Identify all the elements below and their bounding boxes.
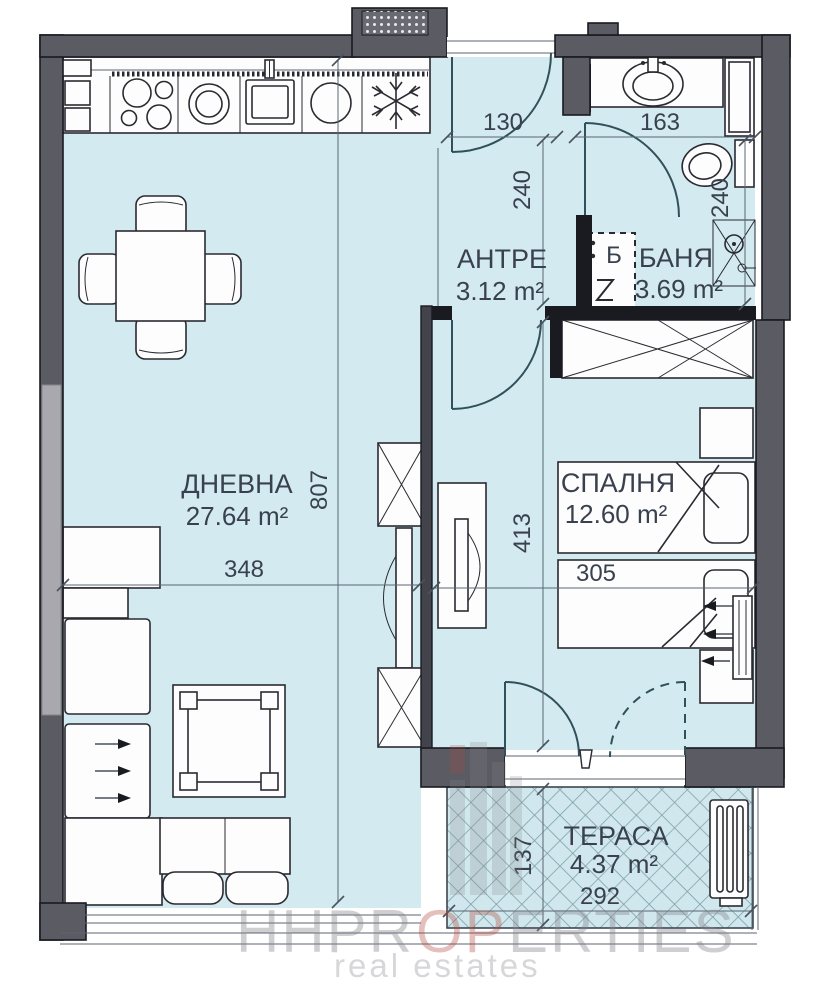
- wall-top-bathroom: [555, 35, 790, 57]
- hall-area: 3.12 m²: [456, 276, 544, 306]
- dim-living-width: 348: [224, 556, 264, 583]
- nightstand-top: [700, 408, 753, 458]
- wall-partition: [421, 306, 432, 750]
- hall-name: АНТРЕ: [457, 244, 547, 274]
- dining-table: [116, 231, 205, 321]
- boiler-washer-box: Б: [587, 233, 635, 309]
- watermark-tagline: real estates: [334, 947, 541, 984]
- tv-stand-bedroom: [438, 483, 486, 628]
- radiator-bedroom-icon: [733, 596, 752, 679]
- wall-stub-closet: [550, 320, 562, 378]
- wall-top-step: [588, 23, 618, 35]
- terrace-name: ТЕРАСА: [563, 821, 668, 851]
- wall-top-kitchen: [40, 35, 355, 57]
- bedroom-name: СПАЛНЯ: [561, 468, 675, 498]
- watermark-part3: ERTIES: [508, 898, 736, 965]
- sideboard-step: [63, 588, 128, 618]
- wall-right-lower: [756, 320, 784, 778]
- kitchen-corner-cabinet: [62, 60, 91, 131]
- boiler-label: Б: [606, 242, 622, 269]
- wall-bottom-left-corner: [40, 903, 86, 940]
- wall-terrace-right-block: [685, 748, 784, 787]
- floor-plan-svg: Б: [0, 0, 829, 1000]
- bedroom-area: 12.60 m²: [565, 499, 668, 529]
- dim-living-length: 807: [306, 470, 333, 510]
- entry-threshold: [447, 37, 557, 57]
- shaft-dots: [362, 11, 428, 35]
- dim-hall-depth: 240: [509, 170, 536, 210]
- window-left: [42, 385, 61, 715]
- dim-bedroom-width: 305: [576, 560, 616, 587]
- wall-right-upper: [762, 35, 790, 320]
- sideboard: [63, 527, 160, 588]
- wall-bath-left: [576, 215, 592, 315]
- wardrobe: [562, 320, 753, 378]
- bath-area: 3.69 m²: [635, 274, 723, 304]
- living-room-name: ДНЕВНА: [181, 469, 292, 499]
- coffee-table: [173, 685, 285, 797]
- radiator-terrace-icon: [710, 800, 748, 906]
- dim-bath-depth: 240: [707, 178, 734, 218]
- wall-post-entry: [563, 57, 590, 115]
- kitchen-counter: [62, 57, 430, 133]
- terrace-area: 4.37 m²: [570, 849, 658, 879]
- dim-entry-width: 130: [483, 109, 523, 136]
- living-room-area: 27.64 m²: [186, 501, 289, 531]
- dim-bath-width: 163: [640, 109, 680, 136]
- terrace-door-threshold: [505, 750, 685, 785]
- dim-bedroom-length: 413: [509, 513, 536, 553]
- wall-bath-bottom: [545, 306, 756, 320]
- floor-plan-page: Б: [0, 0, 829, 1000]
- bath-name: БАНЯ: [639, 243, 713, 273]
- vanity-sink: [587, 57, 723, 107]
